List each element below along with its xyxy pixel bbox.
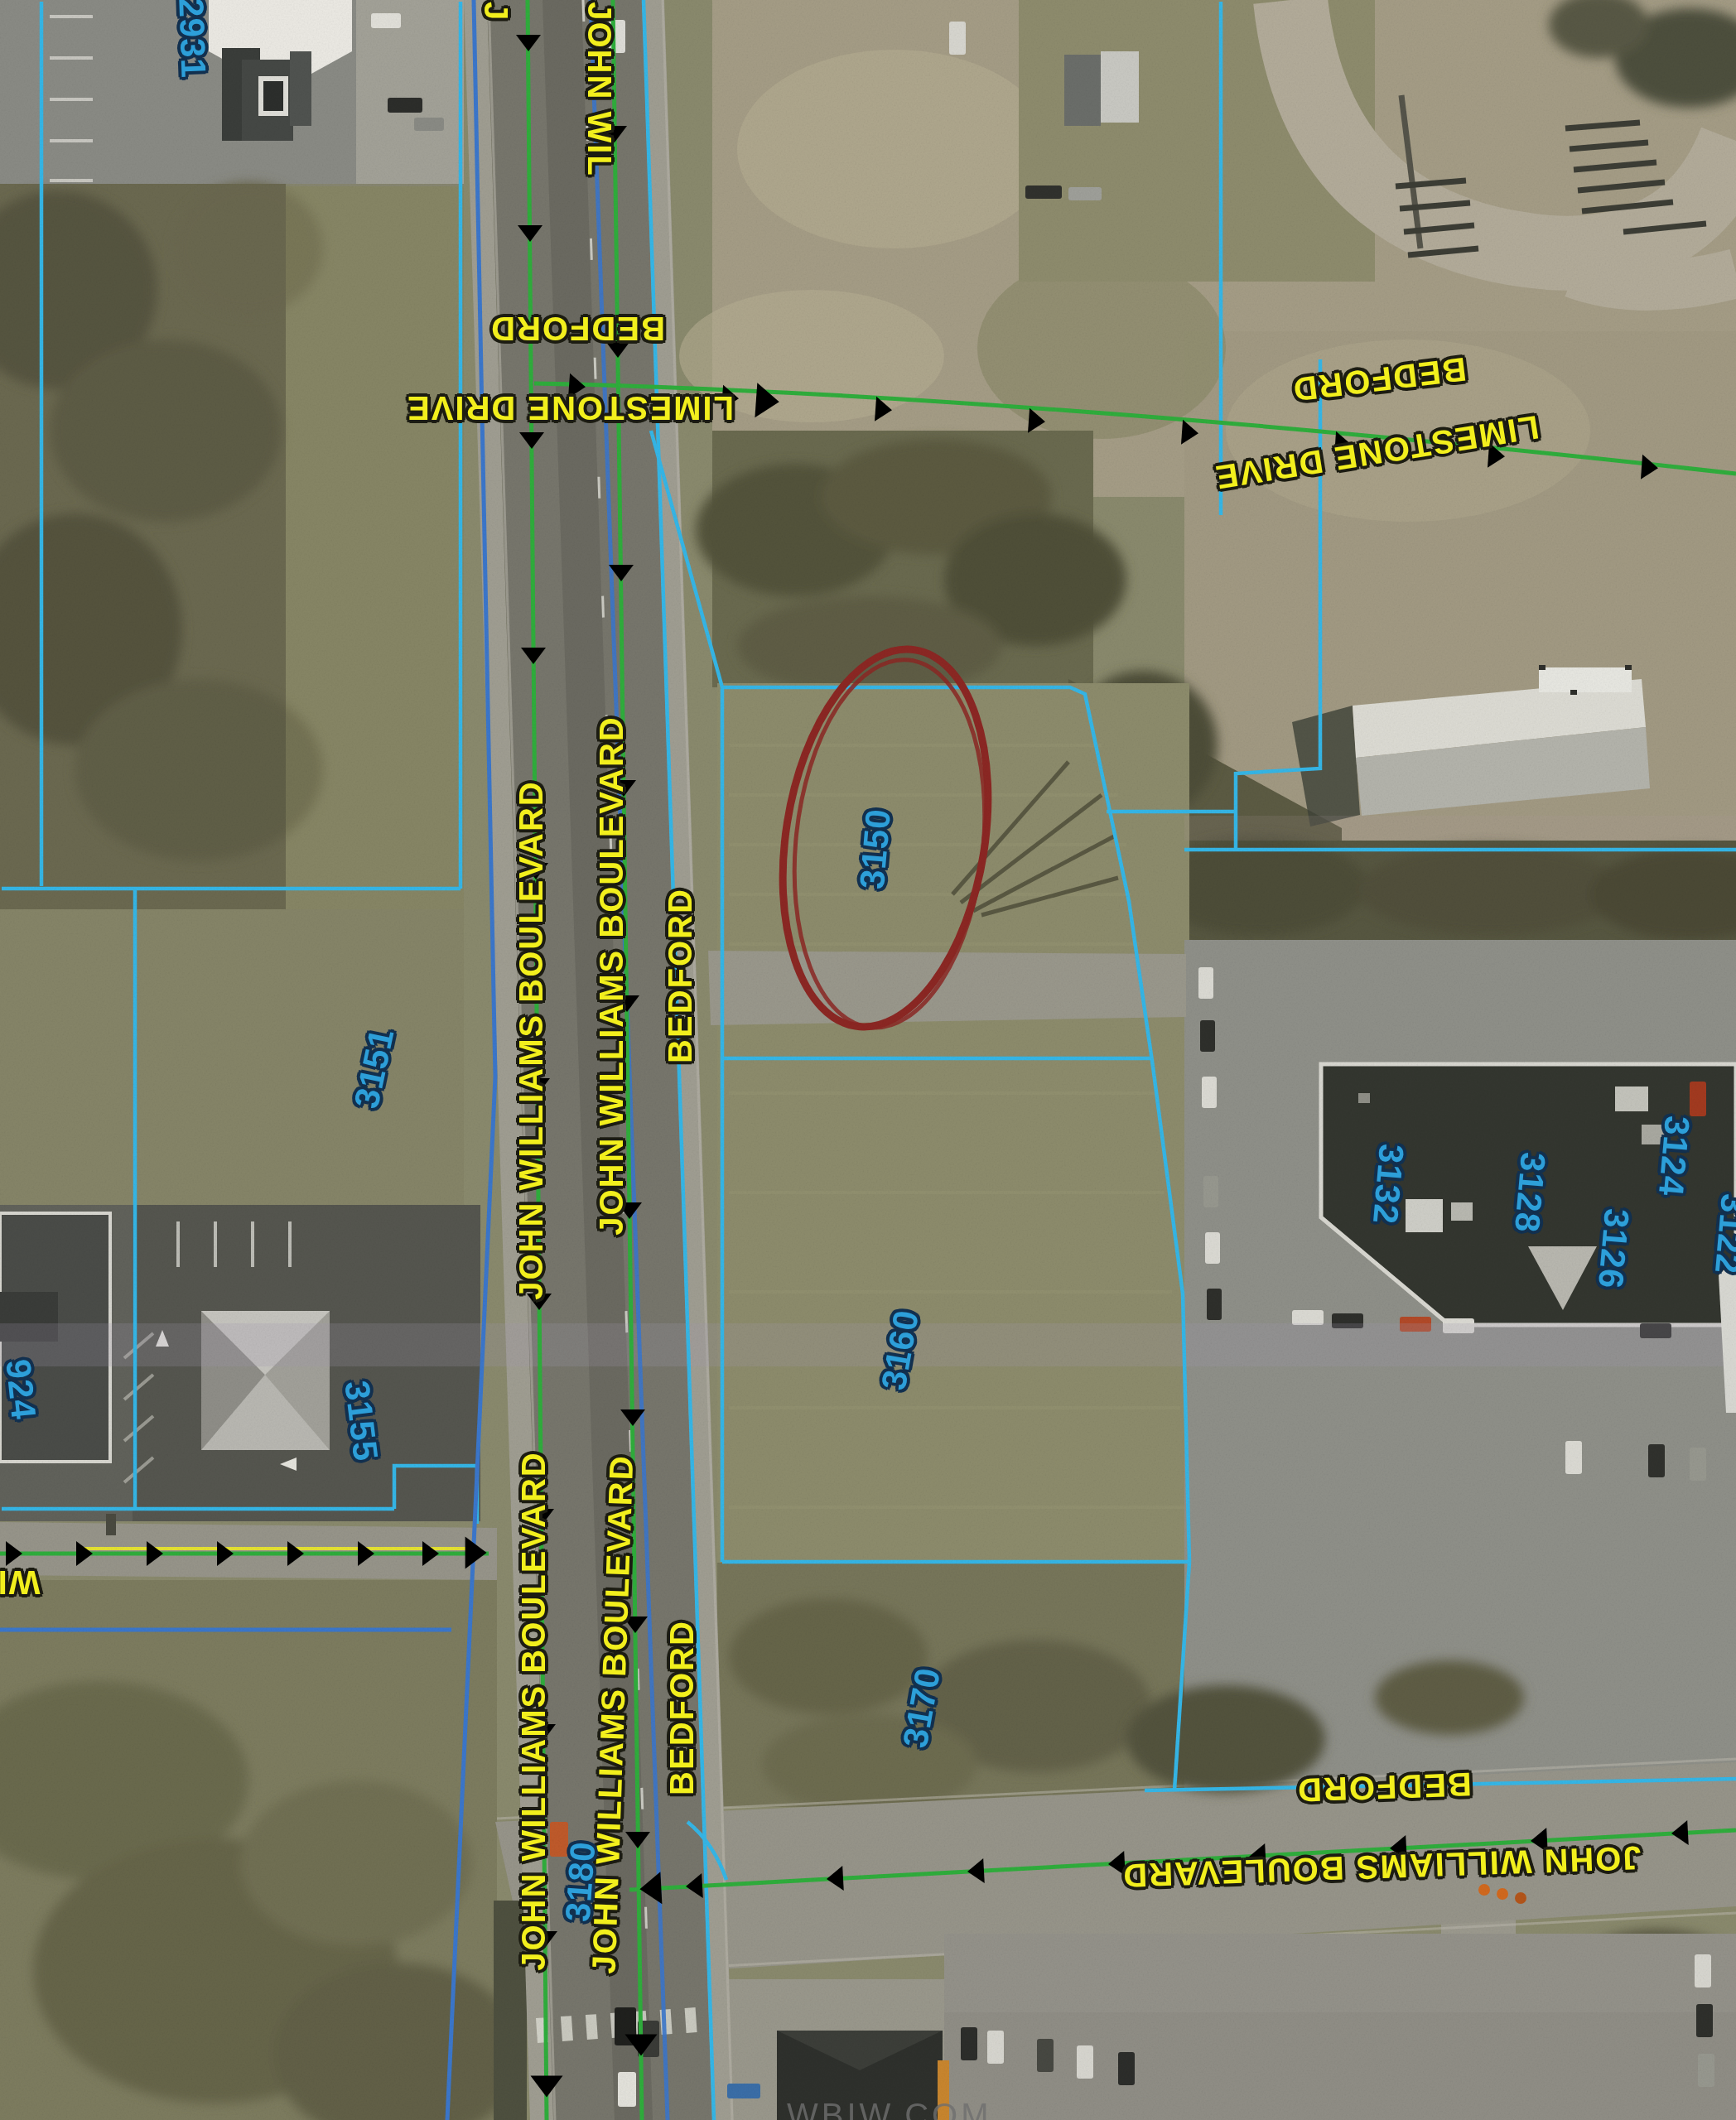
parcel-aerial-map: JOHN WILJBEDFORDLIMESTONE DRIVEBEDFORDLI… [0, 0, 1736, 2120]
aerial-basemap [0, 0, 1736, 2120]
watermark: WBIW.COM [787, 2097, 992, 2120]
